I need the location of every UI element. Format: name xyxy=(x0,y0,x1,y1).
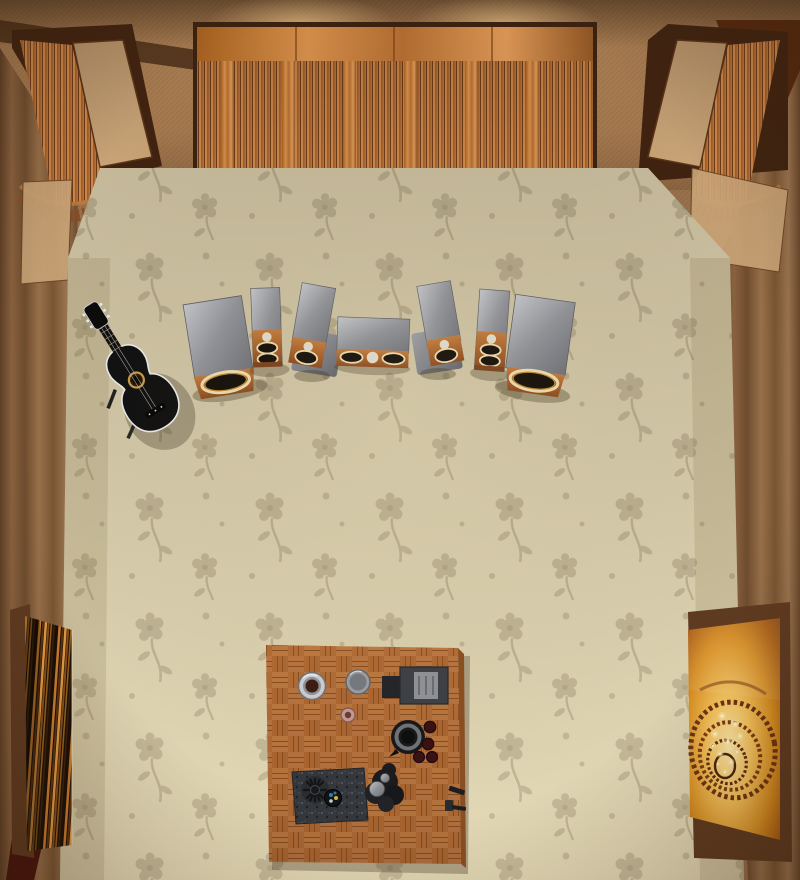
vignette-overlay xyxy=(0,0,800,880)
listening-room-scene xyxy=(0,0,800,880)
room-render xyxy=(0,0,800,880)
